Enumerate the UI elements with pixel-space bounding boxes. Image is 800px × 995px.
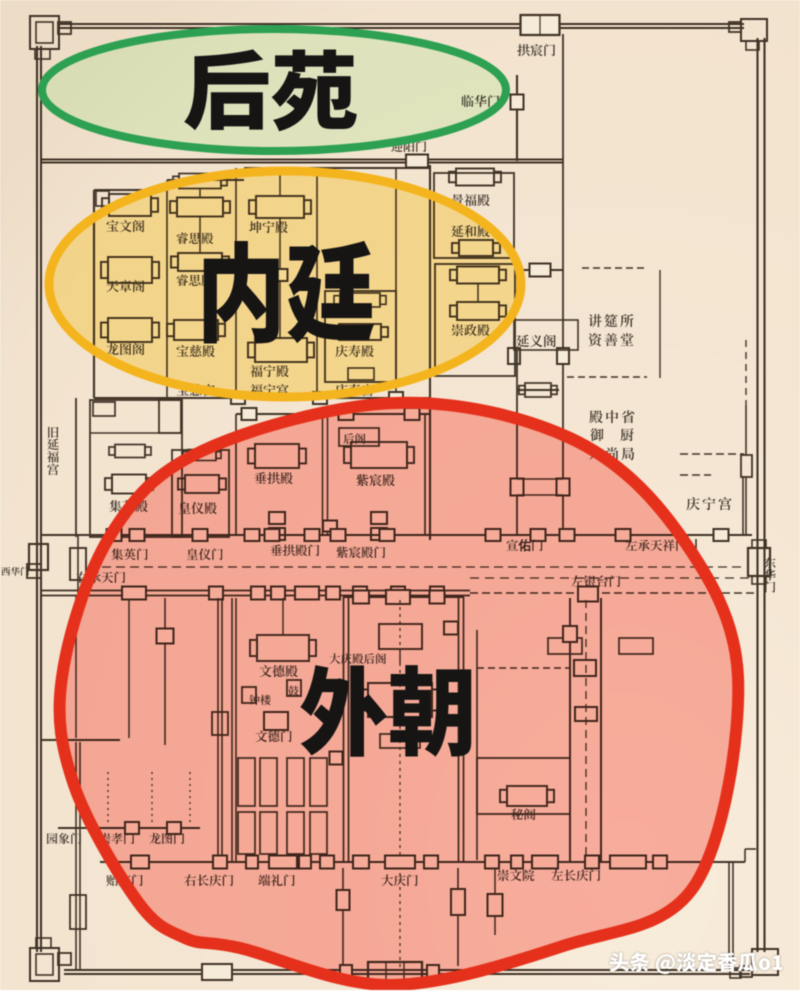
- svg-text:御厨: 御厨: [590, 425, 650, 445]
- svg-text:头条 @淡定香瓜o1: 头条 @淡定香瓜o1: [609, 946, 784, 976]
- svg-text:庆宁宫: 庆宁宫: [686, 494, 734, 514]
- svg-text:殿中省: 殿中省: [589, 407, 637, 427]
- svg-text:外朝: 外朝: [299, 636, 477, 775]
- svg-text:后苑: 后苑: [183, 24, 358, 147]
- svg-text:内廷: 内廷: [196, 209, 375, 364]
- svg-text:延义阁: 延义阁: [516, 330, 557, 350]
- svg-text:西华门: 西华门: [1, 564, 30, 578]
- svg-text:东华门: 东华门: [762, 556, 779, 593]
- svg-text:讲筵所: 讲筵所: [588, 311, 636, 331]
- svg-text:资善堂: 资善堂: [588, 330, 636, 350]
- svg-text:拱宸门: 拱宸门: [517, 40, 556, 59]
- svg-text:旧延福宫: 旧延福宫: [44, 425, 62, 476]
- svg-text:园象门: 园象门: [46, 830, 82, 847]
